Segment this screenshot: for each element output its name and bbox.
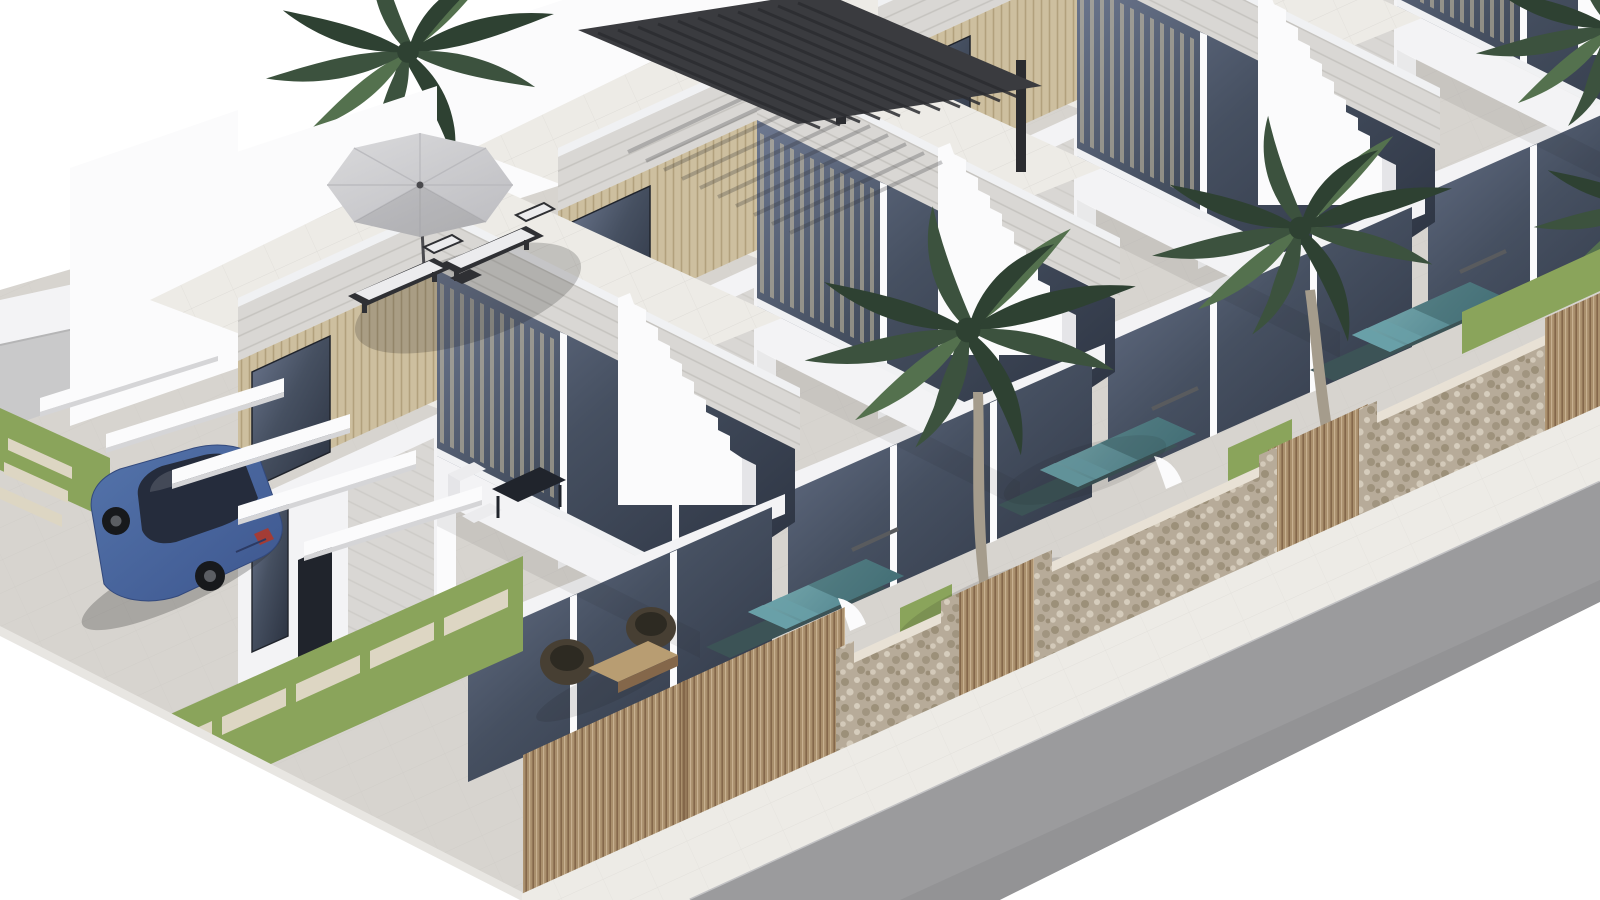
chair-cushion [635,612,667,636]
stone-pier [1359,401,1377,527]
umbrella-tip [417,182,424,189]
wheel-hub [111,516,122,527]
chair-cushion [550,645,584,671]
render-viewport [0,0,1600,900]
wheel-hub [204,570,216,582]
